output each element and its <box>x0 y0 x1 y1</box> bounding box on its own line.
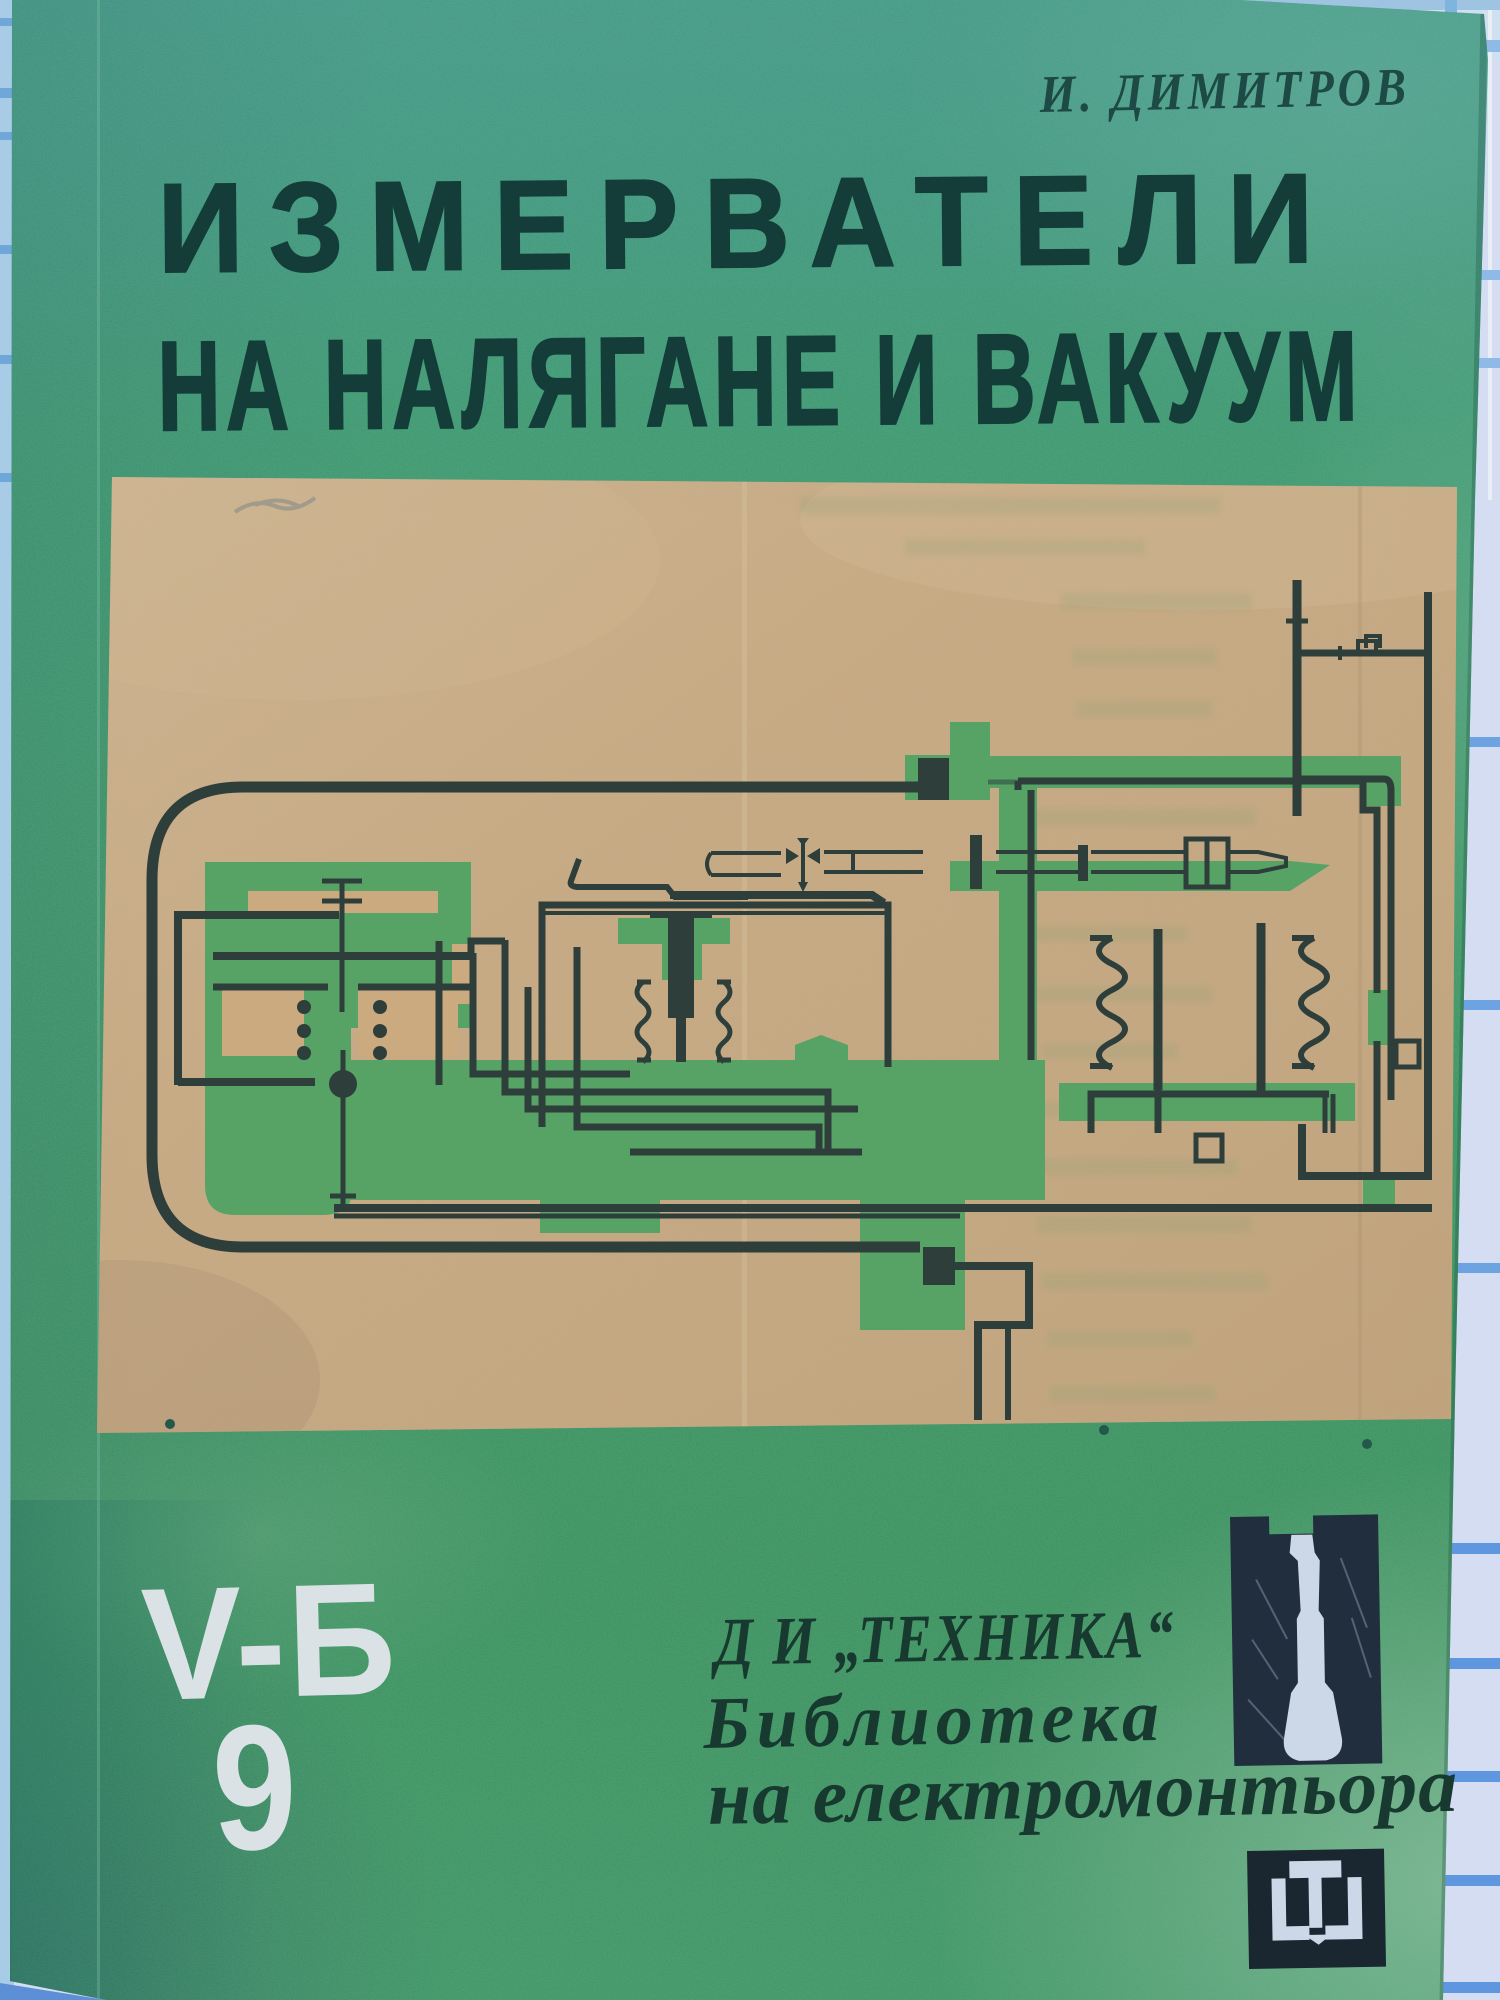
svg-text:ИЗМЕРВАТЕЛИ: ИЗМЕРВАТЕЛИ <box>157 147 1339 300</box>
svg-text:Д И „ТЕХНИКА“: Д И „ТЕХНИКА“ <box>710 1598 1177 1680</box>
svg-text:НА НАЛЯГАНЕ И ВАКУУМ: НА НАЛЯГАНЕ И ВАКУУМ <box>157 305 1363 458</box>
svg-text:И. ДИМИТРОВ: И. ДИМИТРОВ <box>1038 57 1411 123</box>
svg-text:9: 9 <box>210 1687 299 1888</box>
